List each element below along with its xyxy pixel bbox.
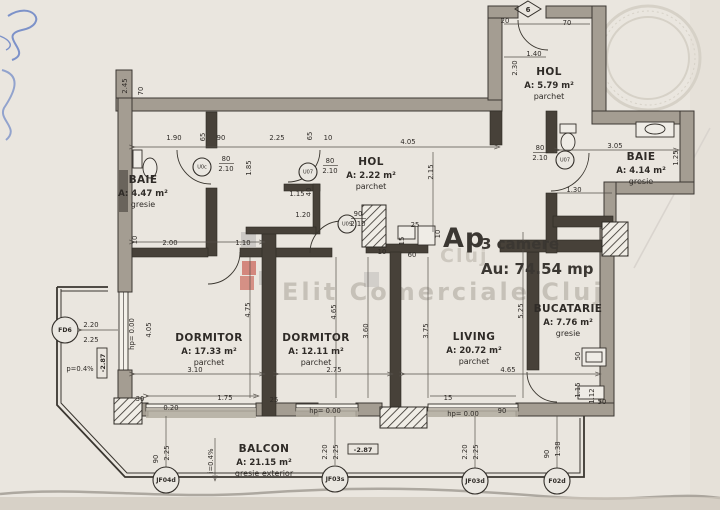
room-label-balcon: BALCONA: 21.15 m²gresie exterior [235, 443, 294, 478]
toilet-tank [133, 150, 142, 168]
door-height: 2.10 [322, 167, 337, 175]
pen-scribble [0, 11, 36, 140]
dimension-label: 5.25 [517, 303, 525, 318]
toilet-icon [561, 133, 575, 151]
level-marker: -2.87 [348, 444, 378, 454]
floor-plan-drawing: Elit Comerciale Cluj Cluj [0, 0, 720, 510]
room-name: HOL [358, 156, 384, 168]
dimension-label: 1.12 [588, 388, 596, 403]
dimension-label: 3.75 [422, 323, 430, 338]
dimension-label: 90 [217, 134, 226, 142]
axis-number: 6 [526, 6, 531, 14]
dimension-label: 2.20 [461, 444, 469, 459]
balcony-pier [380, 407, 427, 428]
door-width: 90 [354, 210, 363, 218]
dimension-label: 2.20 [83, 321, 98, 329]
dimension-label: 10 [378, 248, 387, 256]
joinery-marker-F02d: F02d [544, 468, 570, 494]
ventilation-shaft [362, 205, 386, 247]
dimension-label: 1.10 [235, 239, 250, 247]
room-floor-finish: parchet [301, 358, 332, 367]
dimension-label: 2.45 [121, 78, 129, 93]
room-name: BUCATARIE [534, 303, 603, 315]
marker-code: JF03s [325, 476, 345, 483]
apartment-label: Ap [443, 223, 485, 254]
toilet-tank [560, 124, 576, 133]
door-width: 80 [326, 157, 335, 165]
dimension-label: 1.38 [554, 441, 562, 456]
dimension-label: 4.05 [145, 322, 153, 337]
dimension-label: 65 [199, 133, 207, 142]
marker-code: JF04d [155, 477, 176, 484]
dimension-label: 2.25 [163, 445, 171, 460]
room-area: A: 20.72 m² [446, 346, 502, 356]
door-height: 2.10 [350, 220, 365, 228]
marker-code: JF03d [464, 478, 485, 485]
page-edge-shade [690, 0, 720, 510]
embossed-seal [596, 6, 700, 110]
kitchen-sink-bowl [586, 352, 602, 362]
dimension-label: 2.25 [332, 444, 340, 459]
joinery-marker-JF04d: JF04d [153, 467, 179, 493]
joinery-marker-JF03d: JF03d [462, 468, 488, 494]
dimension-label: 2.25 [472, 444, 480, 459]
dimension-label: 70 [563, 19, 572, 27]
room-label-dormitor: DORMITORA: 12.11 m²parchet [282, 332, 349, 367]
dimension-label: 2.75 [326, 366, 341, 374]
dimension-label: 0.20 [163, 404, 178, 412]
level-value: -2.87 [354, 446, 373, 454]
structural-column [602, 222, 628, 256]
dimension-label: hp= 0.00 [447, 410, 479, 418]
dimension-label: 2.20 [321, 444, 329, 459]
door-height: 2.10 [532, 154, 547, 162]
room-name: BALCON [239, 443, 290, 455]
door-arc [527, 372, 557, 402]
dimension-label: 1.15 [289, 190, 304, 198]
scan-bottom-band [0, 497, 720, 510]
dimension-label: 15 [398, 237, 406, 246]
door-height: 2.10 [218, 165, 233, 173]
useful-area-label: Au: 74.54 mp [481, 260, 594, 278]
room-name: BAIE [129, 174, 158, 186]
dimension-label: 10 [131, 236, 139, 245]
dimension-label: 90 [152, 455, 160, 464]
joinery-marker-JF03s: JF03s [322, 466, 348, 492]
room-floor-finish: parchet [194, 358, 225, 367]
room-area: A: 4.47 m² [118, 189, 168, 199]
dimension-label: 15 [444, 394, 453, 402]
entry-door-arc [518, 20, 548, 50]
room-floor-finish: parchet [534, 92, 565, 101]
dimension-label: 50 [574, 352, 582, 361]
room-name: HOL [536, 66, 562, 78]
dimension-label: 4.75 [244, 302, 252, 317]
level-marker: -2.87 [97, 348, 107, 378]
room-label-living: LIVINGA: 20.72 m²parchet [446, 331, 502, 366]
room-area: A: 21.15 m² [236, 458, 292, 468]
dimension-label: 1.90 [166, 134, 181, 142]
room-label-baie: BAIEA: 4.14 m²gresie [616, 151, 666, 186]
room-floor-finish: gresie [556, 329, 581, 338]
door-arc [208, 252, 240, 284]
dimension-label: 1.25 [672, 150, 680, 165]
scanned-floor-plan-sheet: Elit Comerciale Cluj Cluj [0, 0, 720, 510]
dimension-label: 4.65 [500, 366, 515, 374]
room-area: A: 17.33 m² [181, 347, 237, 357]
door-label-U0c: U0c802.10 [193, 155, 234, 176]
dimension-label: 60 [408, 251, 417, 259]
sink-icon [645, 124, 665, 134]
dimension-label: 3.60 [362, 323, 370, 338]
dimension-label: hp= 0.00 [128, 318, 136, 350]
dimension-label: 70 [137, 87, 145, 96]
room-name: BAIE [627, 151, 656, 163]
dimension-label: 20 [501, 17, 510, 25]
dimension-label: 25 [270, 396, 279, 404]
dimension-label: 4.05 [400, 138, 415, 146]
dimension-label: 50 [598, 398, 607, 406]
dimension-label: 25 [411, 221, 420, 229]
room-area: A: 2.22 m² [346, 171, 396, 181]
door-code: U0c [197, 165, 207, 171]
dimension-label: 1.85 [245, 160, 253, 175]
dimension-label: 1.75 [217, 394, 232, 402]
room-area: A: 12.11 m² [288, 347, 344, 357]
room-label-hol: HOLA: 2.22 m²parchet [346, 156, 396, 191]
joinery-marker-FD6: FD6 [52, 317, 78, 343]
watermark-logo-square [240, 276, 254, 290]
room-label-bucatarie: BUCATARIEA: 7.76 m²gresie [534, 303, 603, 338]
door-code: U07 [303, 170, 313, 176]
dimension-label: 1.30 [566, 186, 581, 194]
dimension-label: 1.20 [295, 211, 310, 219]
room-floor-finish: gresie [629, 177, 654, 186]
dimension-label: 2.15 [427, 164, 435, 179]
dimension-label: 40 [305, 188, 313, 197]
room-name: DORMITOR [282, 332, 349, 344]
room-label-hol: HOLA: 5.79 m²parchet [524, 66, 574, 101]
room-floor-finish: parchet [356, 182, 387, 191]
room-name: DORMITOR [175, 332, 242, 344]
dimension-label: 65 [306, 132, 314, 141]
dimension-label: 2.00 [162, 239, 177, 247]
dimension-label: 2.25 [83, 336, 98, 344]
dimension-label: 90 [498, 407, 507, 415]
room-area: A: 7.76 m² [543, 318, 593, 328]
dimension-label: 1.40 [526, 50, 541, 58]
dimension-label: 10 [324, 134, 333, 142]
watermark-logo-square [242, 261, 256, 275]
room-name: LIVING [453, 331, 495, 343]
door-code: U07 [560, 158, 570, 164]
dimension-label: 4.65 [330, 304, 338, 319]
door-width: 80 [222, 155, 231, 163]
dimension-label: p=0.4% [66, 365, 94, 373]
dimension-label: 1.15 [574, 382, 582, 397]
room-floor-finish: parchet [459, 357, 490, 366]
room-floor-finish: gresie exterior [235, 469, 294, 478]
door-width: 80 [536, 144, 545, 152]
level-value: -2.87 [99, 354, 107, 373]
room-area: A: 5.79 m² [524, 81, 574, 91]
room-label-dormitor: DORMITORA: 17.33 m²parchet [175, 332, 242, 367]
washer [418, 226, 435, 245]
room-area: A: 4.14 m² [616, 166, 666, 176]
dimension-label: 30 [136, 395, 145, 403]
dimension-label: 2.30 [511, 60, 519, 75]
marker-code: F02d [548, 478, 565, 485]
dimension-label: 10 [434, 230, 442, 239]
axis-marker: 6 [515, 1, 541, 17]
dimension-label: 3.05 [607, 142, 622, 150]
dimension-label: 3.10 [187, 366, 202, 374]
dimension-label: 2.25 [269, 134, 284, 142]
rooms-count-label: 3 camere [481, 235, 559, 253]
watermark-text: Elit Comerciale Cluj [282, 278, 605, 306]
marker-code: FD6 [58, 327, 72, 334]
room-floor-finish: gresie [131, 200, 156, 209]
dimension-label: hp= 0.00 [309, 407, 341, 415]
dimension-label: 90 [543, 450, 551, 459]
dimension-label: i=0.4% [207, 448, 215, 473]
